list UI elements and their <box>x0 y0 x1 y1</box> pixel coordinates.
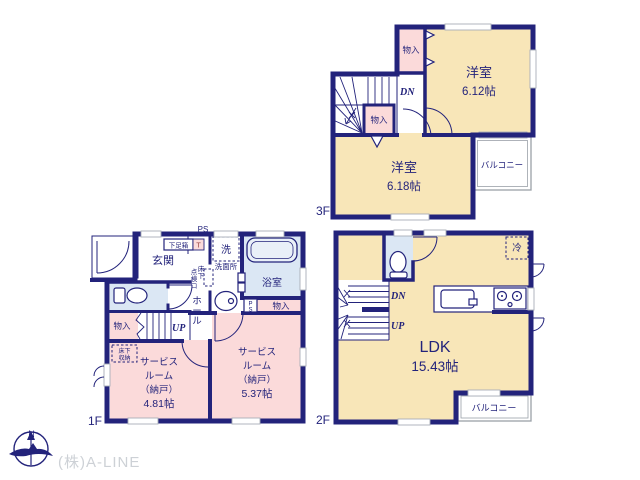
hatch-label-right: 床下 <box>198 264 205 280</box>
plan-2f: 冷 DN UP LDK 15.43帖 バルコニー 2F <box>316 230 544 427</box>
stairs-up-label: UP <box>172 323 186 334</box>
toilet-icon <box>390 252 407 279</box>
floor-label-3f: 3F <box>316 204 330 218</box>
floor-hatch-icon <box>204 269 213 286</box>
entrance-porch <box>92 236 138 280</box>
floor-label-1f: 1F <box>88 414 102 428</box>
room-label: 洋室 <box>466 65 492 80</box>
room-western-6-18 <box>333 133 473 217</box>
ps-s-label: S <box>248 308 252 314</box>
washbasin-icon <box>215 292 237 311</box>
faucet-icon <box>469 299 477 305</box>
toilet-icon <box>127 288 147 303</box>
closet-label: 物入 <box>402 45 420 55</box>
room-label: 洋室 <box>391 160 417 175</box>
stairs-1f <box>136 313 171 339</box>
kitchen-counter <box>434 286 531 312</box>
hatch-label-left: 点検口 <box>191 268 198 290</box>
fridge-label: 冷 <box>512 242 522 254</box>
svg-text:サービス: サービス <box>140 357 178 368</box>
washroom-label: 洗面所 <box>215 261 238 271</box>
balcony-label: バルコニー <box>481 160 523 170</box>
room-western-6-12 <box>423 27 533 135</box>
closet-label: 物入 <box>272 301 290 311</box>
stairs-dn-label: DN <box>390 291 406 302</box>
floor-label-2f: 2F <box>316 413 330 427</box>
ldk-label: LDK <box>419 339 450 356</box>
svg-text:5.37帖: 5.37帖 <box>242 387 273 400</box>
floorplan-canvas: 洋室 6.12帖 洋室 6.18帖 物入 物入 DN バルコニー 3F <box>0 0 640 480</box>
bath-label: 浴室 <box>262 276 282 289</box>
closet-label: 物入 <box>370 115 388 125</box>
plan-1f: P S PS 玄関 下足箱 T 洗 洗面所 浴室 点検口 床下 ホール <box>88 225 306 428</box>
compass-icon: N <box>9 429 53 466</box>
underfloor-label-2: 収納 <box>118 354 130 362</box>
room-size: 6.12帖 <box>462 84 496 98</box>
svg-text:サービス: サービス <box>238 347 276 358</box>
closet-label: 物入 <box>113 321 131 331</box>
stove-icon <box>494 288 526 309</box>
svg-text:ルーム: ルーム <box>145 371 173 382</box>
t-box-label: T <box>196 241 201 250</box>
svg-text:（納戸）: （納戸） <box>238 374 276 386</box>
hall-label: ホール <box>192 296 202 327</box>
svg-text:4.81帖: 4.81帖 <box>144 397 175 410</box>
balcony-label: バルコニー <box>472 403 517 413</box>
ps-box: P S <box>244 299 257 314</box>
entrance-label: 玄関 <box>152 253 174 267</box>
floorplan-page: 洋室 6.12帖 洋室 6.18帖 物入 物入 DN バルコニー 3F <box>0 0 640 480</box>
north-label: N <box>28 429 35 439</box>
shoe-box-label: 下足箱 <box>169 241 189 250</box>
bathtub-icon <box>247 238 297 262</box>
ldk-size: 15.43帖 <box>411 359 458 374</box>
washer-label: 洗 <box>221 244 231 256</box>
plan-3f: 洋室 6.12帖 洋室 6.18帖 物入 物入 DN バルコニー 3F <box>316 24 536 220</box>
svg-text:（納戸）: （納戸） <box>140 384 178 396</box>
stairs-up-label: UP <box>391 321 405 332</box>
room-size: 6.18帖 <box>387 179 421 193</box>
stairs-dn-label: DN <box>399 87 415 98</box>
toilet-icon <box>114 288 125 303</box>
footer: N (株)A-LINE <box>9 429 140 471</box>
ps-top-label: PS <box>198 225 209 234</box>
bath-folding-door-icon <box>238 273 245 292</box>
svg-text:ルーム: ルーム <box>243 361 271 372</box>
company-logo-text: (株)A-LINE <box>58 454 140 471</box>
underfloor-label-1: 床下 <box>118 347 130 355</box>
